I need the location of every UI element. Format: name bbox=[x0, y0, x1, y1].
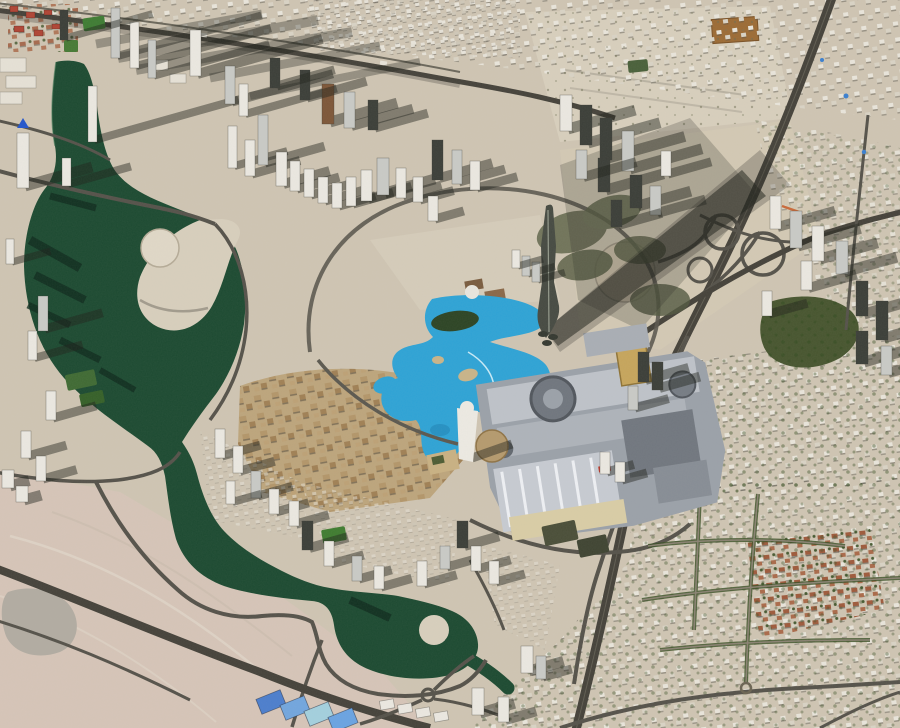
image-grain-overlay bbox=[0, 0, 900, 728]
screenshot-root bbox=[0, 0, 900, 728]
satellite-image-downtown-dubai bbox=[0, 0, 900, 728]
